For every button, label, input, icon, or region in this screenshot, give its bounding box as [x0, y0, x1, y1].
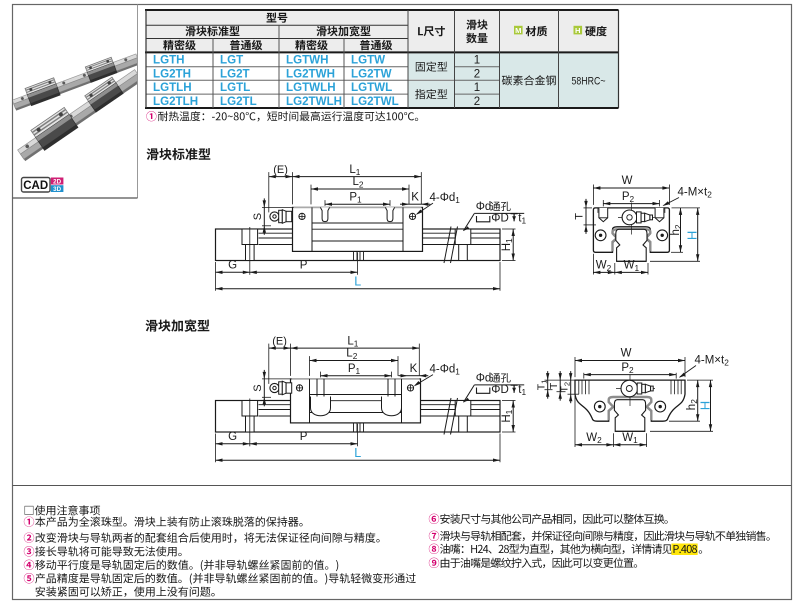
svg-text:Φd: Φd — [476, 373, 492, 385]
svg-text:T: T — [574, 213, 586, 220]
svg-text:H1: H1 — [501, 238, 514, 251]
svg-text:L2: L2 — [346, 348, 357, 361]
svg-text:W: W — [621, 348, 632, 360]
svg-text:P1: P1 — [348, 363, 361, 376]
svg-text:LG2TW: LG2TW — [351, 67, 392, 80]
svg-text:L1: L1 — [347, 335, 358, 348]
svg-text:1: 1 — [474, 82, 480, 94]
svg-text:M: M — [515, 26, 521, 35]
svg-text:4-M×t2: 4-M×t2 — [678, 186, 713, 199]
svg-text:LG2TLH: LG2TLH — [153, 95, 198, 108]
svg-text:h2: h2 — [670, 224, 683, 235]
svg-text:K: K — [411, 191, 419, 203]
svg-text:LG2TWL: LG2TWL — [351, 95, 399, 108]
svg-text:2D: 2D — [53, 178, 61, 185]
svg-text:P2: P2 — [622, 191, 635, 204]
svg-text:LGTL: LGTL — [220, 81, 250, 94]
svg-text:LG2TWH: LG2TWH — [286, 67, 335, 80]
svg-text:LGTW: LGTW — [351, 54, 385, 67]
svg-text:LGTH: LGTH — [153, 54, 185, 67]
svg-text:S: S — [252, 384, 264, 391]
svg-text:L: L — [354, 275, 361, 289]
svg-text:LGT: LGT — [220, 54, 243, 67]
svg-text:LG2TL: LG2TL — [220, 95, 257, 108]
svg-text:G: G — [228, 260, 237, 272]
svg-text:Φd: Φd — [476, 201, 492, 213]
svg-text:LG2T: LG2T — [220, 67, 250, 80]
svg-text:T1: T1 — [536, 380, 549, 391]
svg-text:4-M×t2: 4-M×t2 — [695, 354, 730, 367]
svg-text:2: 2 — [474, 68, 480, 80]
svg-text:1: 1 — [474, 55, 480, 67]
svg-text:(E): (E) — [273, 164, 288, 176]
svg-text:L2: L2 — [352, 176, 363, 189]
svg-text:58HRC~: 58HRC~ — [572, 76, 606, 88]
svg-text:CAD: CAD — [23, 180, 48, 192]
svg-text:(E): (E) — [272, 335, 287, 347]
svg-text:P: P — [300, 431, 308, 443]
svg-text:H: H — [575, 26, 580, 35]
svg-text:P2: P2 — [621, 362, 634, 375]
svg-text:L: L — [354, 446, 361, 460]
svg-text:K: K — [410, 363, 418, 375]
svg-text:P1: P1 — [349, 191, 362, 204]
svg-text:LGTWL: LGTWL — [351, 81, 392, 94]
svg-text:t1: t1 — [518, 384, 526, 397]
svg-text:H1: H1 — [501, 409, 514, 422]
svg-text:t1: t1 — [518, 213, 526, 226]
svg-text:ΦD: ΦD — [491, 213, 508, 225]
svg-text:LG2TH: LG2TH — [153, 67, 191, 80]
svg-text:W2: W2 — [586, 432, 602, 445]
svg-text:W1: W1 — [622, 432, 638, 445]
svg-text:H: H — [698, 401, 713, 410]
svg-text:G: G — [228, 431, 237, 443]
svg-text:S: S — [252, 213, 264, 220]
svg-text:P: P — [300, 260, 308, 272]
svg-text:LG2TWLH: LG2TWLH — [286, 95, 342, 108]
svg-text:W: W — [622, 175, 633, 187]
svg-text:ΦD: ΦD — [491, 384, 508, 396]
svg-text:W2: W2 — [596, 260, 612, 273]
svg-text:H: H — [685, 231, 700, 240]
svg-text:LGTWH: LGTWH — [286, 54, 329, 67]
svg-text:LGTLH: LGTLH — [153, 81, 192, 94]
svg-text:4-Φd1: 4-Φd1 — [430, 363, 461, 376]
svg-text:4-Φd1: 4-Φd1 — [430, 192, 461, 205]
svg-text:LGTWLH: LGTWLH — [286, 81, 336, 94]
svg-text:2: 2 — [474, 96, 480, 108]
svg-text:3D: 3D — [53, 186, 61, 193]
svg-text:L1: L1 — [349, 164, 360, 177]
